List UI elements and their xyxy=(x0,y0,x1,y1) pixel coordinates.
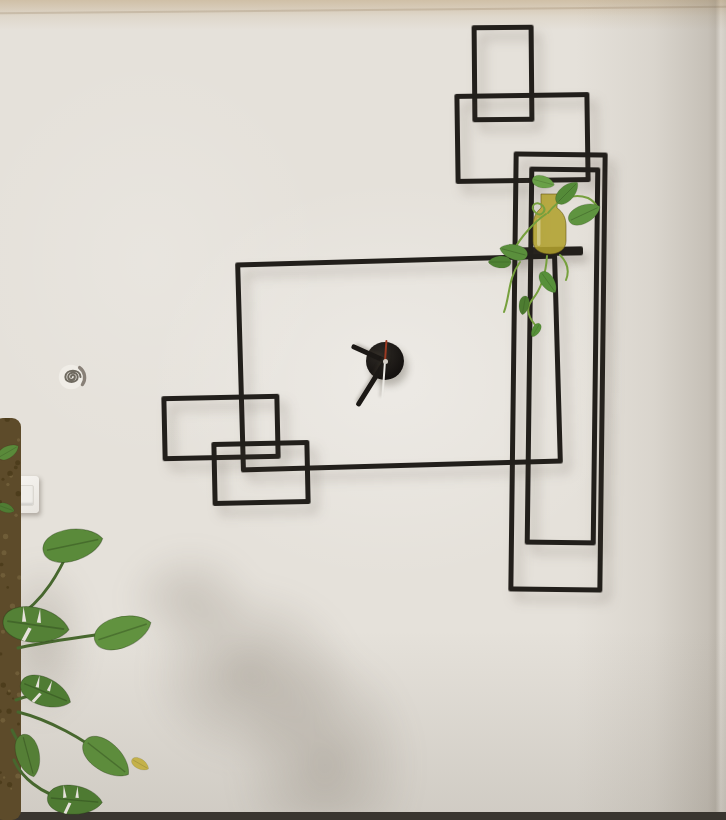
monstera-stems xyxy=(12,548,118,800)
plant-leaf xyxy=(529,322,544,339)
plant-leaf xyxy=(531,173,556,190)
wall-corner-shading xyxy=(575,0,726,820)
frame-rect-upper-wide xyxy=(454,92,590,184)
plant-wall-shadow xyxy=(0,0,726,820)
frame-rect-tall-inner xyxy=(525,167,601,546)
floor-strip xyxy=(0,812,726,820)
plant-leaf xyxy=(130,755,151,773)
plant-leaf xyxy=(517,295,530,315)
plant-leaf xyxy=(536,268,561,296)
room-photo xyxy=(0,0,726,820)
frame-rect-tall-outer xyxy=(508,151,607,592)
wall-anchor-spiral xyxy=(55,361,89,395)
plant-leaf xyxy=(90,608,156,656)
plant-leaf xyxy=(488,256,511,268)
plaster-crease-line xyxy=(0,6,726,14)
plant-leaf xyxy=(0,441,21,463)
wall-highlight xyxy=(0,0,726,820)
plant-leaf xyxy=(11,732,45,780)
plant-leaf xyxy=(1,603,72,647)
vase-highlight xyxy=(537,218,541,246)
shelf-plant xyxy=(488,173,604,338)
frame-shelf xyxy=(505,246,583,256)
clock-center-pin xyxy=(383,359,388,364)
glass-vase xyxy=(533,194,566,254)
light-switch-rocker xyxy=(16,485,35,506)
pothos-vines xyxy=(504,196,598,328)
frame-rect-left-lower-small xyxy=(211,440,310,506)
frame-rect-top-portrait xyxy=(472,25,535,123)
plant-leaf xyxy=(40,523,106,567)
light-switch xyxy=(9,476,39,513)
plant-leaf xyxy=(552,177,583,208)
plant-leaf xyxy=(76,729,137,786)
ceiling-shadow-strip xyxy=(0,0,726,30)
plant-leaf xyxy=(565,198,604,229)
wall-art-frame xyxy=(0,0,726,820)
lower-wall-shadow xyxy=(0,630,726,820)
plant-leaf xyxy=(16,669,76,715)
plant-leaf xyxy=(498,241,529,263)
frame-rect-left-upper-small xyxy=(161,394,280,461)
